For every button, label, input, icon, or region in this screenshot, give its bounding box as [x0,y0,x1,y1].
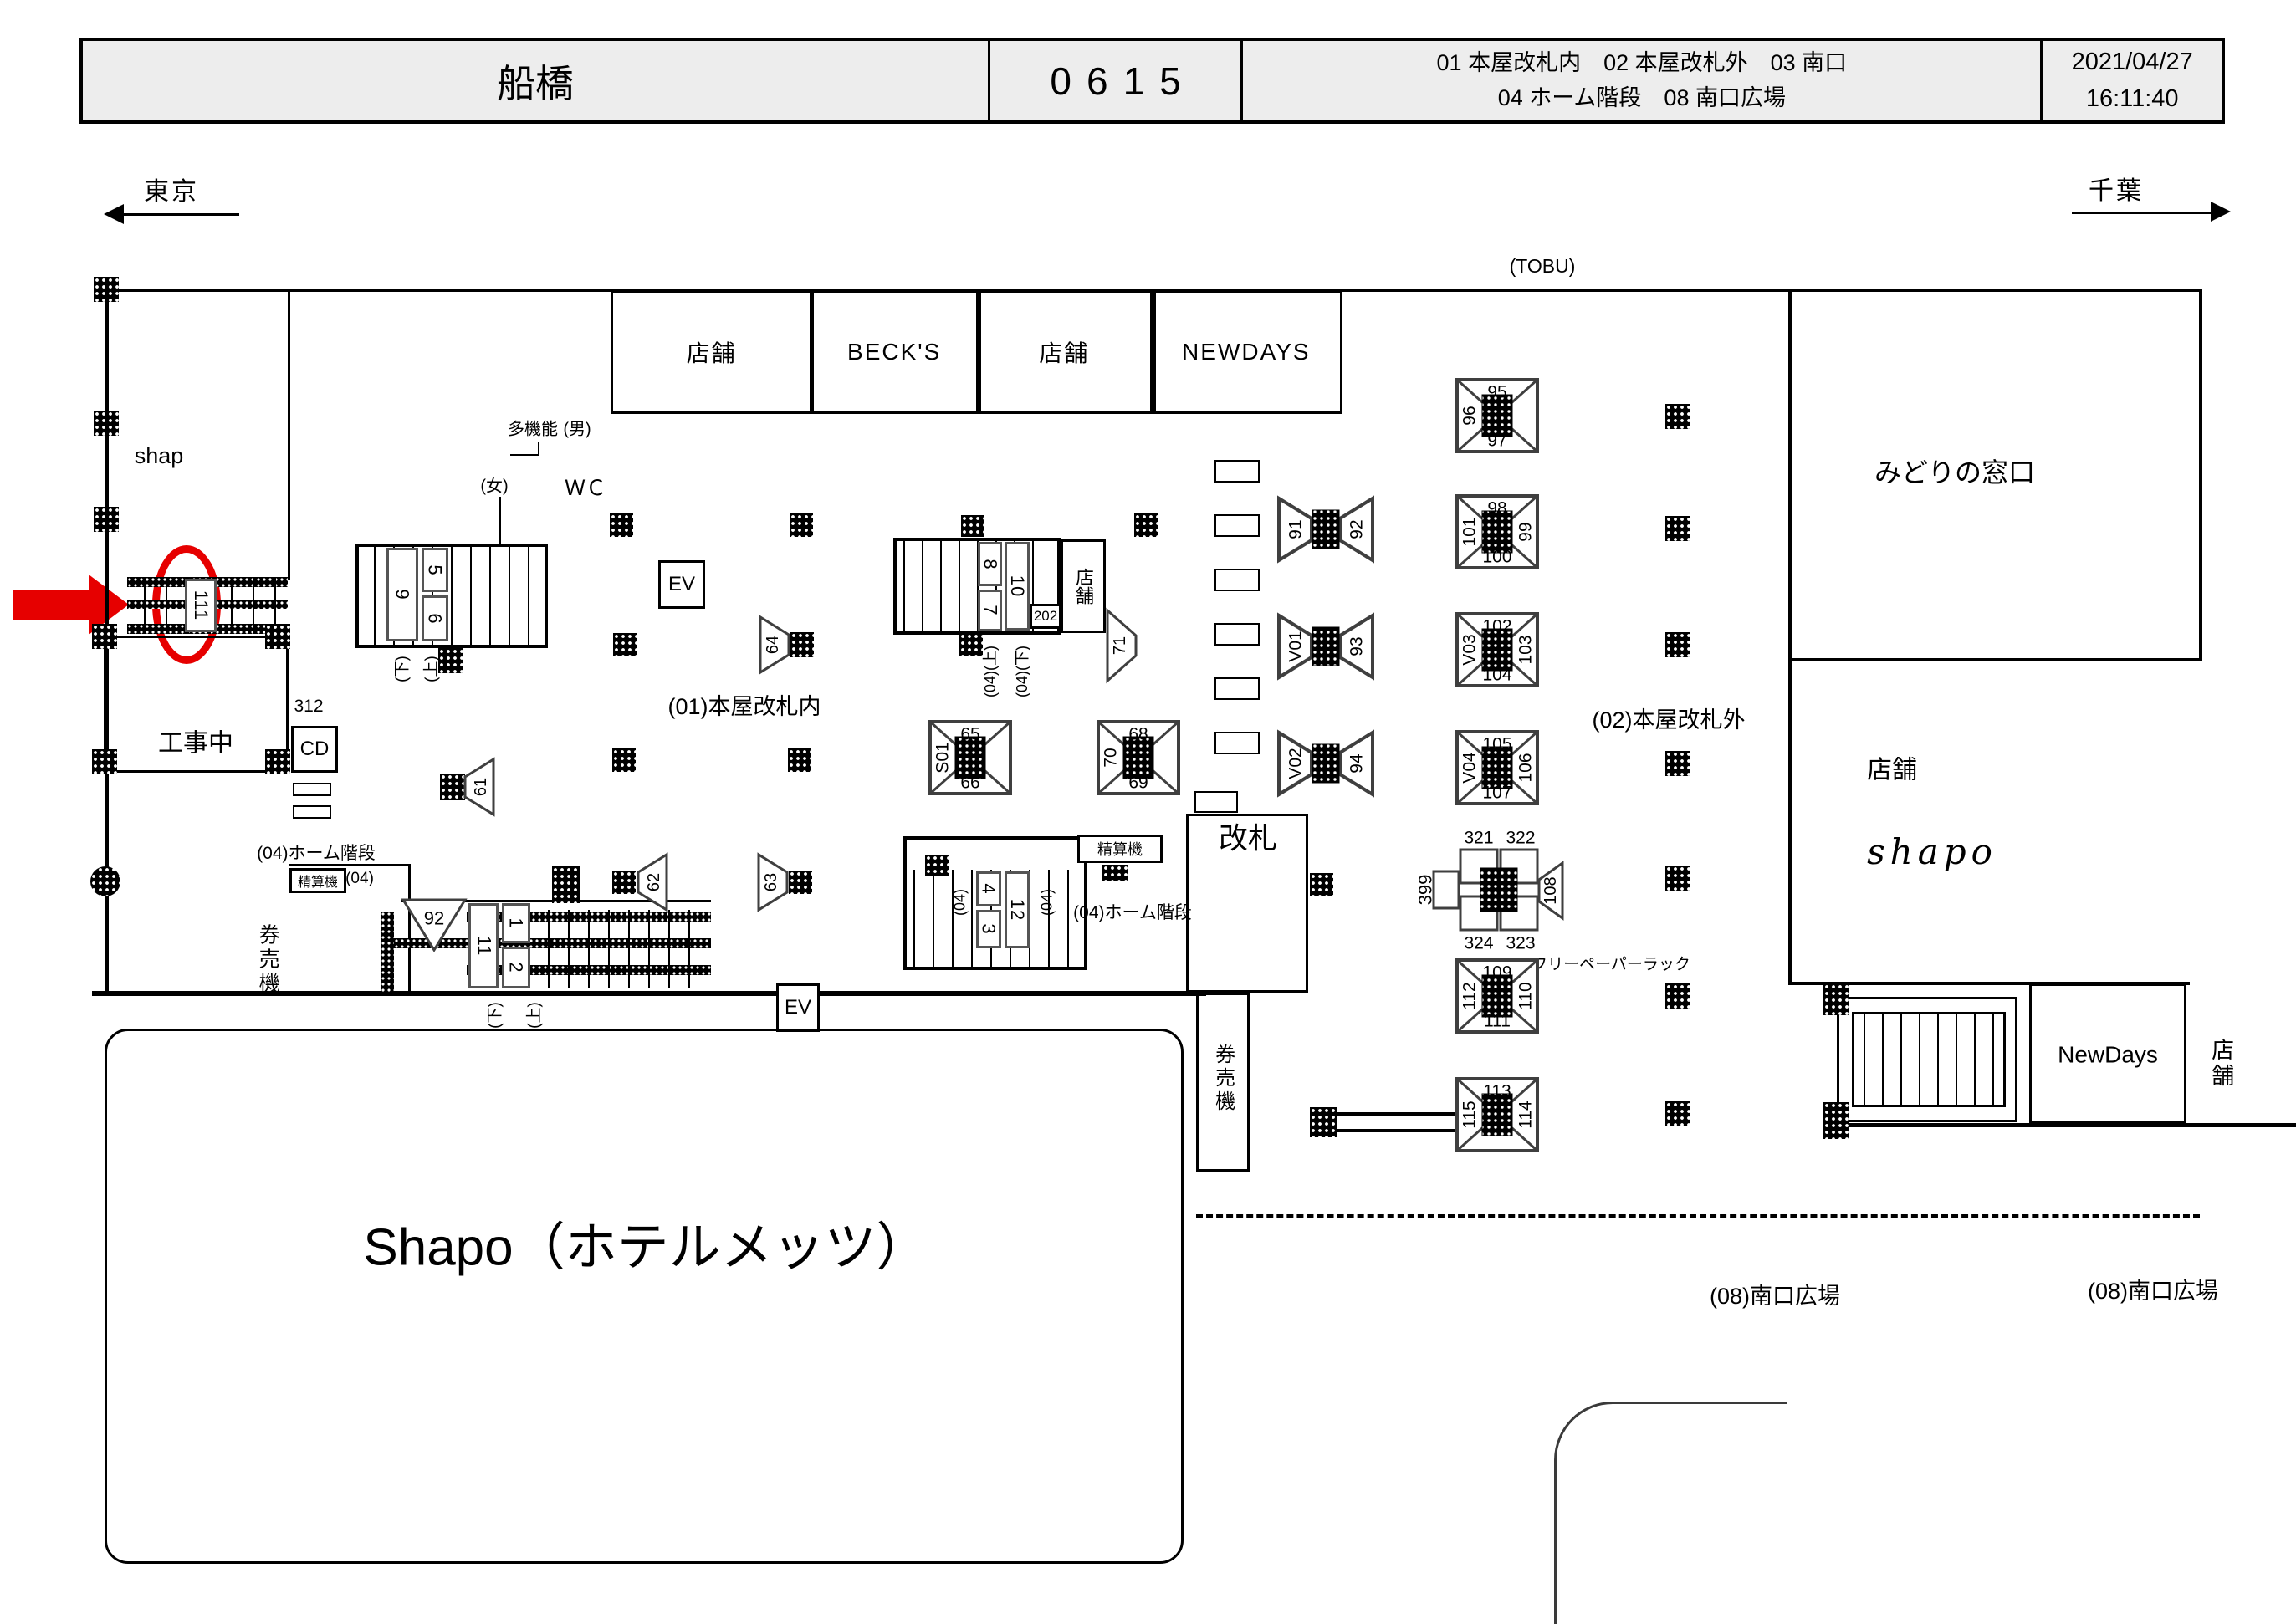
ticket-gate [293,783,331,796]
svg-text:71: 71 [1111,636,1129,655]
station-name: 船橋 [83,41,990,120]
area-02-outside-gates: (02)本屋改札外 [1592,708,1745,732]
wall [499,497,501,545]
svg-text:V01: V01 [1286,631,1306,661]
store-202: 202 [1030,604,1061,629]
stair-camera-number: 5 [424,564,446,575]
wall [510,454,539,456]
pillar [1665,516,1690,541]
ticket-gate [1214,677,1260,700]
pillar [440,774,465,800]
camera-cluster-102: 102104V03103 [1457,614,1537,686]
ticket-gate [1214,514,1260,537]
stair-camera-box: 8 [978,542,1002,586]
stair-tread [1956,1014,1957,1106]
tobu: (TOBU) [1510,256,1576,276]
camera-cluster-98: 9810010199 [1457,496,1537,568]
structure-outline [1852,1012,2006,1107]
svg-text:322: 322 [1506,829,1535,848]
camera-bowtie-94: V0294 [1279,733,1373,794]
pillar [610,513,633,537]
pillar [612,871,636,894]
multifunction-toilet: 多機能 [508,421,558,439]
svg-text:96: 96 [1460,406,1480,425]
seisanki-right-label: 精算機 [1097,838,1143,860]
stair-camera-box: 12 [1005,871,1030,948]
store-annex: 店舗 [1061,539,1106,633]
date: 2021/04/27 [2072,44,2193,81]
stair-camera-box: 3 [976,910,1001,948]
stair-direction-label: (上) [522,1002,545,1029]
pillar [1665,751,1690,776]
stair-tread [144,577,146,634]
camera-legend: 01 本屋改札内 02 本屋改札外 03 南口 04 ホーム階段 08 南口広場 [1243,41,2043,120]
seisanki-right: 精算機 [1077,835,1163,863]
stair-tread [509,547,510,645]
direction-tokyo: 東京 [144,171,199,207]
svg-text:93: 93 [1347,636,1367,656]
stair-camera-number: 111 [190,590,212,620]
pillar [790,513,813,537]
svg-text:69: 69 [1128,774,1148,793]
number-312: 312 [294,697,323,716]
svg-text:94: 94 [1347,753,1367,774]
stair-tread [933,870,934,967]
camera-wedge-64: 64 [760,617,789,672]
svg-text:68: 68 [1128,725,1148,744]
svg-text:108: 108 [1542,876,1560,904]
svg-text:103: 103 [1516,635,1536,664]
stair-tread [489,547,491,645]
svg-text:V03: V03 [1460,634,1480,665]
pillar [1665,1101,1690,1126]
svg-text:99: 99 [1516,522,1536,541]
arrow-right-line [2072,212,2212,214]
wc: ＷＣ [565,477,606,499]
svg-text:111: 111 [1484,1012,1511,1031]
south-plaza-right: (08)南口広場 [2088,1279,2218,1303]
pillar [1665,983,1690,1009]
pillar [265,749,290,774]
stair-camera-number: 12 [1006,899,1028,921]
svg-text:91: 91 [1286,519,1306,539]
pillar [438,648,463,673]
wall [811,290,814,414]
svg-text:321: 321 [1464,829,1493,848]
camera-cluster-113: 113115114 [1457,1079,1537,1151]
stair-camera-box: 7 [978,590,1002,631]
svg-text:114: 114 [1516,1101,1536,1129]
stair-tread [568,910,570,988]
svg-text:63: 63 [762,873,780,891]
ticket-gate [1214,732,1260,754]
highlight-arrow-shaft [13,590,89,620]
pillar [961,515,984,537]
label-04-left: (04) [345,871,374,887]
legend-line-2: 04 ホーム階段 08 南口広場 [1498,81,1786,116]
stair-tread [628,910,630,988]
svg-text:97: 97 [1487,432,1506,451]
pillar [92,749,117,774]
pillar [1134,513,1158,537]
structure-outline [105,1029,1184,1564]
ticket-gate [1214,460,1260,483]
pillar [1823,1102,1849,1139]
store-becks: BECK'S [812,293,979,411]
seisanki-left: 精算機 [289,868,346,893]
wall [1790,658,2202,661]
svg-text:109: 109 [1482,963,1511,983]
ticket-gate [293,805,331,819]
wall [1153,290,1156,414]
stair-tread [548,910,550,988]
camera-bowtie-93: V0193 [1279,615,1373,677]
stair-camera-number: 7 [979,605,1001,615]
svg-text:100: 100 [1482,548,1511,567]
elevator-2: EV [776,983,820,1032]
svg-text:110: 110 [1516,982,1536,1009]
newdays-store: NewDays [2058,1042,2158,1066]
pillar [92,624,117,649]
svg-text:105: 105 [1482,735,1511,754]
pillar [790,632,814,657]
stair-tread [648,910,650,988]
store-row: 店舗 BECK'S 店舗 NEWDAYS [611,290,1342,414]
stair-direction-label: (下) [483,1002,505,1029]
store-tenpo-1: 店舗 [613,293,812,411]
wall [1336,1129,1458,1132]
svg-text:112: 112 [1460,982,1480,1009]
shap-label: shap [135,444,184,467]
svg-text:61: 61 [472,778,490,796]
svg-text:101: 101 [1460,517,1480,546]
svg-text:106: 106 [1516,753,1536,782]
kenbaiki-right: 券売機 [1212,1044,1233,1114]
svg-text:V04: V04 [1460,752,1480,784]
stair-camera-box: 2 [502,947,530,988]
pillar [1310,1107,1337,1137]
svg-text:399: 399 [1415,875,1436,906]
ticket-gate [1214,623,1260,646]
stair-tread [913,870,915,967]
arrow-left-line [115,213,239,216]
svg-text:115: 115 [1460,1101,1480,1128]
camera-cluster-109: 109111112110 [1457,960,1537,1032]
stair-direction-label: (04)(上) [979,646,1000,697]
store-annex-label: 店舗 [1070,568,1097,605]
stair-camera-number: 11 [473,936,494,957]
pillar [94,277,119,302]
pillar [265,624,290,649]
toilet-men: (男) [563,421,591,439]
under-construction: 工事中 [158,730,233,757]
pillar [1310,873,1333,896]
wall [1788,289,1792,985]
svg-text:324: 324 [1464,934,1493,953]
svg-text:102: 102 [1482,617,1511,636]
stair-tread [1919,1014,1920,1106]
wall [979,290,981,414]
escalator-rail [381,912,394,992]
stair-camera-number: 8 [979,559,1001,569]
south-plaza-boundary [1196,1214,2200,1218]
camera-cluster-95: 959796 [1457,380,1537,452]
stair-tread [1937,1014,1939,1106]
stair-tread [470,547,472,645]
toilet-women: (女) [480,478,508,496]
store-202-label: 202 [1034,608,1057,625]
cd-machine: CD [291,726,338,773]
south-plaza-left: (08)南口広場 [1710,1284,1840,1308]
wall [1336,1112,1458,1116]
camera-wedge-61: 61 [465,759,493,815]
stair-tread [940,541,942,631]
svg-text:62: 62 [645,873,663,891]
stair-tread [688,910,690,988]
title-bar: 船橋 0615 01 本屋改札内 02 本屋改札外 03 南口 04 ホーム階段… [79,38,2225,124]
stair-tread [668,910,670,988]
wall [288,289,290,580]
stair-camera-box: 1 [502,903,530,943]
elevator-2-label: EV [785,996,811,1019]
svg-text:104: 104 [1482,666,1511,685]
pillar [1665,632,1690,657]
stair-camera-number: 1 [505,917,527,928]
stair-camera-number: 2 [505,962,527,973]
stair-camera-box: 11 [468,903,499,988]
svg-text:98: 98 [1487,499,1506,518]
stair-camera-box: 4 [976,871,1001,906]
arrow-left-icon [104,204,124,224]
stair-camera-number: 3 [978,923,1000,934]
stair-camera-box: 5 [422,548,448,592]
stair-tread [528,547,529,645]
stair-camera-box: 111 [185,579,217,632]
wall [2199,289,2202,661]
pillar [613,633,637,656]
pillar [788,748,811,772]
svg-text:65: 65 [960,725,979,744]
svg-text:92: 92 [424,908,444,929]
stair-tread [231,577,233,634]
camera-cluster-321: 321322324323399108 [1415,829,1563,953]
stair-tread [1067,870,1069,967]
pillar-round [90,866,120,896]
svg-text:V02: V02 [1286,748,1306,779]
kenbaiki-left: 券売機 [257,924,279,997]
stair-tread [952,870,954,967]
wall [289,864,411,866]
stair-tread [1882,1014,1884,1106]
free-paper-rack: フリーペーパーラック [1532,957,1690,973]
store-tenpo-2: 店舗 [979,293,1153,411]
svg-text:S01: S01 [933,742,953,773]
stair-tread [374,547,376,645]
arrow-right-icon [2211,202,2231,222]
camera-wedge-71: 71 [1107,610,1136,681]
kaisatsu: 改札 [1219,825,1277,855]
stair-camera-number: 9 [391,589,413,600]
svg-text:92: 92 [1347,519,1367,539]
stair-direction-label: (04) [1039,889,1056,916]
stair-camera-box: 10 [1005,542,1030,631]
pillar [94,507,119,532]
store-newdays: NEWDAYS [1153,293,1340,411]
stair-tread [253,577,254,634]
stair-direction-label: (上) [419,656,442,682]
stair-tread [922,541,923,631]
stair-tread [451,547,453,645]
pillar [1102,865,1128,881]
stair-camera-number: 6 [424,613,446,624]
shapo-hotel: Shapo（ホテルメッツ） [363,1220,928,1274]
pillar [925,855,949,876]
map-code: 0615 [990,41,1243,120]
home-stairs-label-left: (04)ホーム階段 [257,845,376,863]
pillar [1665,866,1690,891]
stair-tread [959,541,960,631]
pillar [789,871,812,894]
road-curb [1554,1402,1787,1624]
time: 16:11:40 [2086,81,2179,118]
stair-tread [1048,870,1050,967]
pillar [94,411,119,436]
svg-text:113: 113 [1483,1082,1511,1101]
stair-camera-number: 10 [1006,575,1028,597]
escalator-rail [382,938,711,948]
direction-chiba: 千葉 [2089,170,2144,207]
midori-no-madoguchi: みどりの窓口 [1874,459,2035,488]
stair-direction-label: (04)(下) [1010,646,1032,697]
stair-tread [1864,1014,1865,1106]
svg-text:107: 107 [1482,784,1511,803]
pillar [1665,404,1690,429]
svg-text:95: 95 [1487,383,1506,402]
svg-text:66: 66 [960,774,979,793]
stair-camera-box: 6 [422,595,448,641]
stair-direction-label: (下) [390,656,412,682]
stair-tread [166,577,167,634]
stair-tread [971,870,973,967]
stair-tread [1900,1014,1902,1106]
camera-cluster-65: 6566S01 [930,722,1010,794]
stair-tread [588,910,590,988]
pillar [1823,983,1849,1015]
pillar [612,748,636,772]
elevator-1: EV [658,560,705,609]
stair-camera-box: 9 [386,548,418,641]
tenpo-right: 店舗 [1867,757,1917,784]
shapo-script: shapo [1867,834,1997,871]
camera-cluster-105: 105107V04106 [1457,732,1537,804]
stair-tread [903,541,905,631]
stair-tread [608,910,610,988]
svg-text:70: 70 [1102,748,1121,767]
camera-wedge-63: 63 [759,855,787,910]
cd-machine-label: CD [300,738,330,761]
legend-line-1: 01 本屋改札内 02 本屋改札外 03 南口 [1437,46,1848,81]
pillar [552,866,580,903]
stair-tread [1992,1014,1994,1106]
ticket-gate [1194,791,1238,813]
seisanki-left-label: 精算機 [298,871,338,891]
camera-bowtie-92: 9192 [1279,498,1373,560]
stair-camera-number: 4 [978,883,1000,894]
area-01-inside-gates: (01)本屋改札内 [667,695,821,718]
timestamp: 2021/04/27 16:11:40 [2043,41,2222,120]
wall [408,866,411,993]
ticket-gate [1214,569,1260,591]
station-floor-plan: 船橋 0615 01 本屋改札内 02 本屋改札外 03 南口 04 ホーム階段… [0,0,2296,1624]
camera-cluster-68: 686970 [1098,722,1179,794]
home-stairs-label-right: (04)ホーム階段 [1073,904,1192,922]
elevator-1-label: EV [668,573,695,596]
stair-tread [1974,1014,1976,1106]
stair-direction-label: (04) [952,889,969,916]
svg-text:323: 323 [1506,934,1535,953]
tenpo-edge: 店舗 [2209,1038,2232,1090]
svg-text:64: 64 [764,636,782,654]
